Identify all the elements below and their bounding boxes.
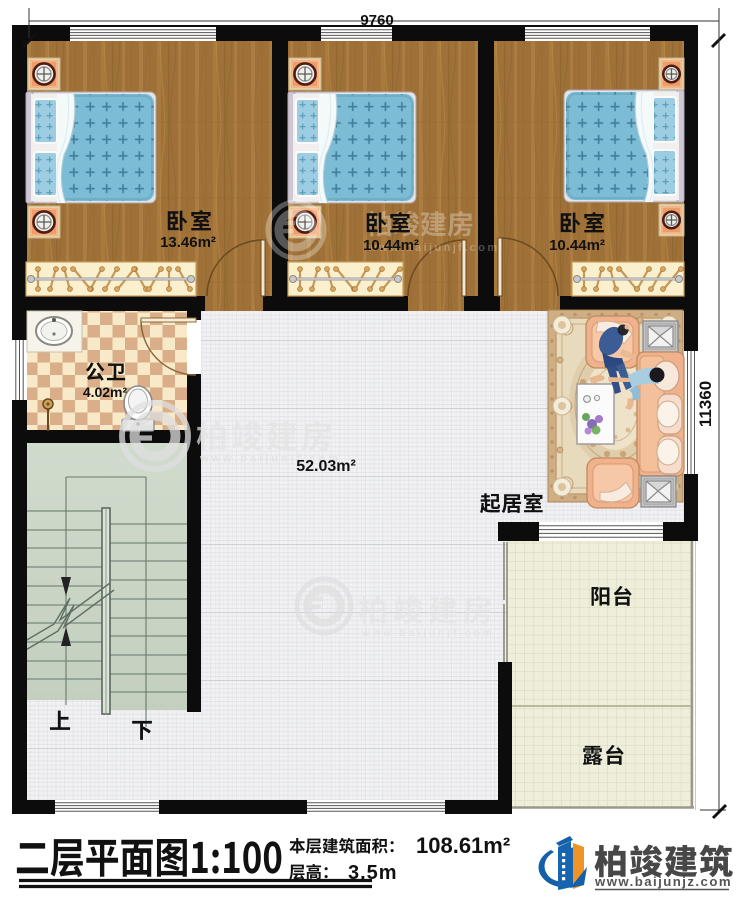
svg-text:4.02m²: 4.02m²: [83, 384, 128, 400]
svg-text:www.baijunjz.com: www.baijunjz.com: [594, 874, 732, 889]
svg-text:11360: 11360: [696, 381, 715, 427]
svg-text:9760: 9760: [360, 12, 393, 29]
svg-text:13.46m²: 13.46m²: [160, 234, 216, 251]
svg-text:www.baijunjf.com: www.baijunjf.com: [361, 628, 495, 639]
svg-text:10.44m²: 10.44m²: [549, 237, 605, 254]
svg-text:10.44m²: 10.44m²: [363, 237, 419, 254]
svg-text:52.03m²: 52.03m²: [296, 458, 356, 475]
svg-text:3.5m: 3.5m: [348, 862, 398, 884]
svg-text:108.61m²: 108.61m²: [416, 833, 510, 858]
